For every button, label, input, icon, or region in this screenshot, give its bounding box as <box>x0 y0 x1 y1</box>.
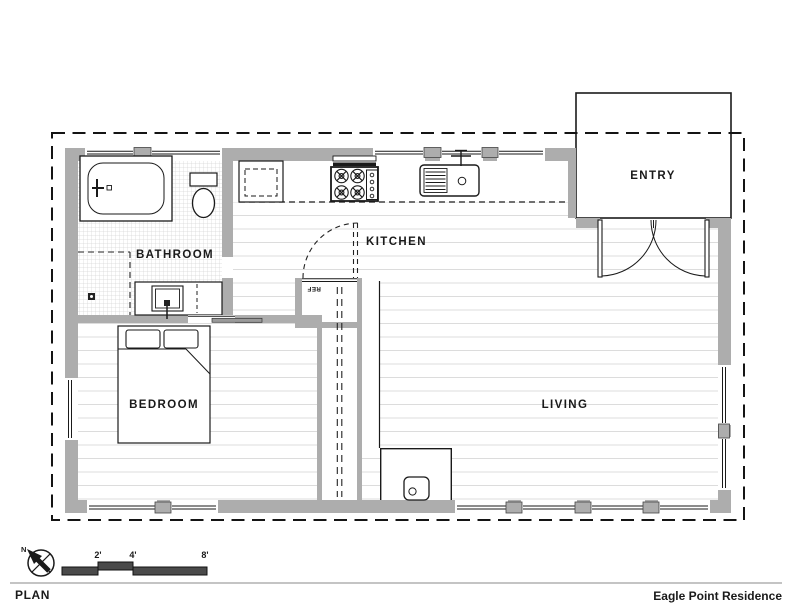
entry-door-jamb-left <box>576 218 600 228</box>
pillow <box>164 330 198 348</box>
window-mullion <box>482 148 498 158</box>
wall-fridge-left <box>295 278 302 322</box>
floor-plan-drawing: REF BATHROOM KITCHEN ENTRY BEDROOM LI <box>0 0 792 612</box>
range-stove <box>331 167 378 201</box>
wall-hall-west <box>317 323 322 500</box>
room-label-kitchen: KITCHEN <box>366 236 427 248</box>
toilet <box>190 173 217 218</box>
room-label-entry: ENTRY <box>630 170 676 182</box>
scale-tick-4ft: 4' <box>129 550 136 560</box>
scale-tick-8ft: 8' <box>201 550 208 560</box>
pillow <box>126 330 160 348</box>
entry-door-jamb-right <box>706 218 731 228</box>
wood-stove <box>404 477 429 500</box>
window-mullion <box>506 502 522 513</box>
wall-fridge-bottom <box>295 322 362 328</box>
refrigerator-label: REF <box>307 285 321 292</box>
sheet-title: PLAN <box>15 588 50 602</box>
scale-tick-2ft: 2' <box>94 550 101 560</box>
window-mullion <box>643 502 659 513</box>
room-label-living: LIVING <box>542 399 589 411</box>
wall-bedroom-north-left <box>78 315 188 323</box>
bathtub <box>80 156 172 221</box>
project-title: Eagle Point Residence <box>653 589 782 603</box>
hearth <box>381 449 452 500</box>
wall-bathroom-east-upper <box>222 161 233 257</box>
wall-entry-left <box>568 148 576 218</box>
wall-hall-east <box>357 278 362 500</box>
bed <box>118 326 210 443</box>
entry-vestibule <box>576 93 731 218</box>
window-mullion <box>575 502 591 513</box>
room-label-bedroom: BEDROOM <box>129 399 199 411</box>
room-label-bathroom: BATHROOM <box>136 249 214 261</box>
range-hood <box>333 156 376 166</box>
window-mullion <box>155 502 171 513</box>
north-label: N <box>21 545 26 554</box>
floor-plan-sheet: REF BATHROOM KITCHEN ENTRY BEDROOM LI <box>0 0 792 612</box>
window-mullion <box>424 148 441 158</box>
window-mullion <box>719 424 730 438</box>
wall-west <box>65 148 78 513</box>
vanity-sink <box>135 282 222 319</box>
